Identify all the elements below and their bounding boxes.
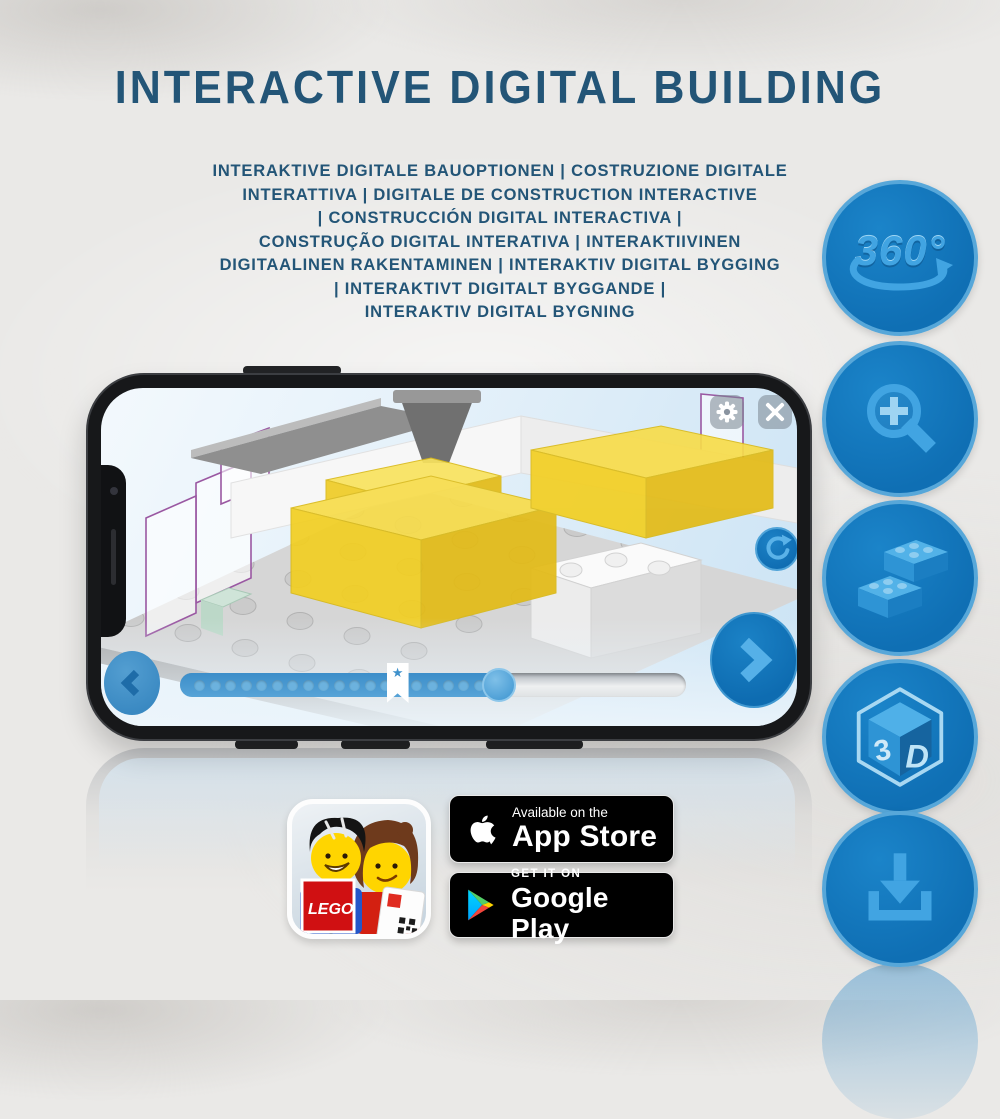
- next-step-button[interactable]: [710, 612, 797, 708]
- slider-handle[interactable]: [482, 668, 516, 702]
- brick-icon: [848, 530, 952, 626]
- phone-frame: ★: [86, 373, 812, 741]
- previous-step-button[interactable]: [104, 651, 160, 715]
- phone-side-button: [486, 740, 583, 749]
- slider-step-dot: [241, 680, 252, 691]
- phone-volume-button: [341, 740, 410, 749]
- settings-button[interactable]: [710, 395, 744, 429]
- download-icon: [858, 847, 942, 931]
- bricks-badge: [822, 500, 978, 656]
- svg-text:LEGO: LEGO: [308, 901, 354, 918]
- svg-text:D: D: [905, 737, 929, 774]
- slider-step-dot: [349, 680, 360, 691]
- rotate-model-button[interactable]: [755, 527, 797, 571]
- close-icon: [764, 401, 786, 423]
- cube-3d-icon: 3 D: [852, 687, 948, 787]
- google-play-tagline: GET IT ON: [511, 867, 663, 882]
- slider-step-dot: [303, 680, 314, 691]
- front-camera: [110, 487, 118, 495]
- page-title: INTERACTIVE DIGITAL BUILDING: [0, 62, 1000, 115]
- slider-step-dot: [256, 680, 267, 691]
- app-store-name: App Store: [512, 821, 657, 853]
- phone-volume-button: [235, 740, 298, 749]
- screen-reflection: [99, 758, 795, 898]
- slider-step-dot: [225, 680, 236, 691]
- slider-bookmark[interactable]: ★: [387, 663, 409, 703]
- rotate-arrow-icon: [846, 257, 954, 291]
- app-store-badge[interactable]: Available on the App Store: [449, 795, 674, 863]
- slider-step-dot: [443, 680, 454, 691]
- google-play-icon: [462, 883, 499, 927]
- slider-step-dot: [318, 680, 329, 691]
- view-3d-badge: 3 D: [822, 659, 978, 815]
- slider-fill: [180, 673, 499, 697]
- slider-step-dot: [411, 680, 422, 691]
- gear-icon: [715, 400, 739, 424]
- slider-step-dot: [210, 680, 221, 691]
- download-icon-reflection: [822, 963, 978, 1119]
- slider-step-dot: [427, 680, 438, 691]
- app-screen: ★: [101, 388, 797, 726]
- slider-step-dot: [194, 680, 205, 691]
- slider-step-dot: [365, 680, 376, 691]
- app-store-tagline: Available on the: [512, 805, 657, 821]
- lego-app-icon[interactable]: LEGO: [287, 799, 431, 939]
- subtitle-line: INTERAKTIVE DIGITALE BAUOPTIONEN | COSTR…: [0, 160, 1000, 184]
- google-play-badge[interactable]: GET IT ON Google Play: [449, 872, 674, 938]
- earpiece-speaker: [111, 529, 116, 585]
- zoom-in-icon: [858, 377, 942, 461]
- google-play-name: Google Play: [511, 882, 663, 944]
- phone-notch: [101, 465, 126, 637]
- rotate-360-badge: 360°: [822, 180, 978, 336]
- chevron-left-icon: [117, 666, 147, 700]
- apple-icon: [464, 808, 500, 850]
- download-badge: [822, 811, 978, 967]
- slider-step-dot: [334, 680, 345, 691]
- star-icon: ★: [392, 663, 404, 703]
- close-button[interactable]: [758, 395, 792, 429]
- slider-step-dot: [287, 680, 298, 691]
- build-progress-slider[interactable]: ★: [180, 672, 686, 698]
- slider-step-dot: [458, 680, 469, 691]
- slider-step-dot: [272, 680, 283, 691]
- lego-minifigures-art: LEGO: [292, 804, 426, 934]
- chevron-right-icon: [733, 635, 775, 685]
- zoom-badge: [822, 341, 978, 497]
- rotate-icon: [761, 533, 793, 565]
